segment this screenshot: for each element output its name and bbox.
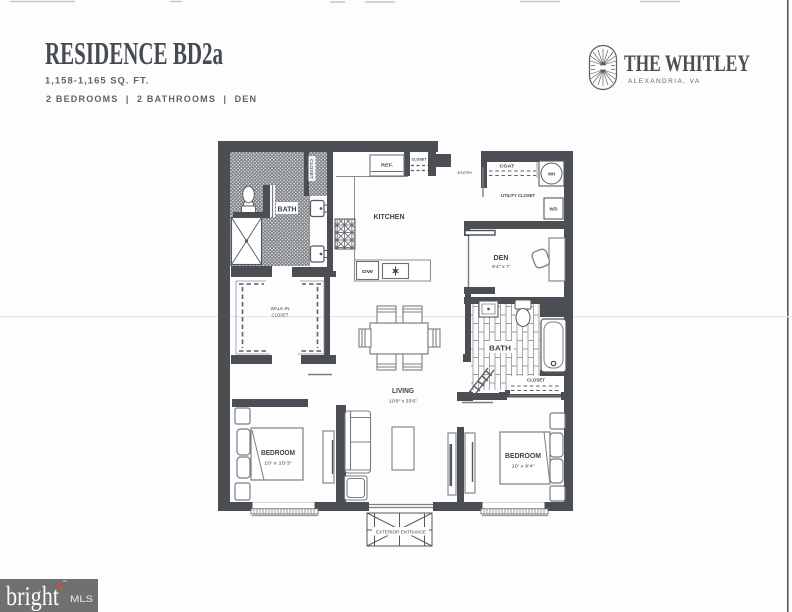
svg-text:CLOSET: CLOSET — [527, 378, 545, 383]
svg-text:1,158-1,165 SQ. FT.: 1,158-1,165 SQ. FT. — [45, 75, 149, 86]
svg-text:10' x 15'3": 10' x 15'3" — [264, 461, 293, 466]
svg-text:ALEXANDRIA, VA: ALEXANDRIA, VA — [628, 78, 701, 85]
svg-text:LIVING: LIVING — [392, 386, 414, 395]
svg-text:THE WHITLEY: THE WHITLEY — [624, 51, 750, 76]
svg-text:10'9" x 33'6": 10'9" x 33'6" — [389, 399, 417, 404]
svg-text:BATH: BATH — [278, 205, 297, 214]
svg-text:BATH: BATH — [489, 344, 511, 353]
svg-text:CLOSET: CLOSET — [412, 158, 428, 162]
svg-text:RESIDENCE BD2a: RESIDENCE BD2a — [45, 35, 223, 71]
svg-text:2 BEDROOMS | 2 BATHROOMS |: 2 BEDROOMS | 2 BATHROOMS | DEN — [46, 94, 257, 104]
svg-text:bright: bright — [6, 581, 59, 611]
svg-text:DEN: DEN — [494, 255, 509, 262]
svg-text:10' x 9'4": 10' x 9'4" — [512, 464, 536, 469]
svg-text:COAT: COAT — [500, 164, 515, 169]
svg-text:W/D: W/D — [549, 207, 557, 212]
svg-text:CLOSET: CLOSET — [309, 159, 314, 180]
svg-text:CLOSET: CLOSET — [272, 313, 289, 318]
svg-text:UTILITY CLOSET: UTILITY CLOSET — [501, 193, 535, 198]
svg-text:9'4" x 7': 9'4" x 7' — [492, 264, 510, 269]
svg-text:ENTRY: ENTRY — [458, 170, 473, 175]
svg-text:KITCHEN: KITCHEN — [374, 212, 405, 221]
svg-text:MLS: MLS — [70, 594, 93, 604]
svg-text:WALK-IN: WALK-IN — [271, 306, 290, 311]
svg-text:WH: WH — [548, 172, 555, 177]
svg-text:REF.: REF. — [381, 163, 393, 168]
svg-text:BEDROOM: BEDROOM — [505, 451, 541, 460]
svg-text:DW: DW — [362, 269, 374, 274]
svg-text:BEDROOM: BEDROOM — [261, 448, 295, 457]
svg-text:EXTERIOR ENTRANCE: EXTERIOR ENTRANCE — [376, 530, 426, 535]
